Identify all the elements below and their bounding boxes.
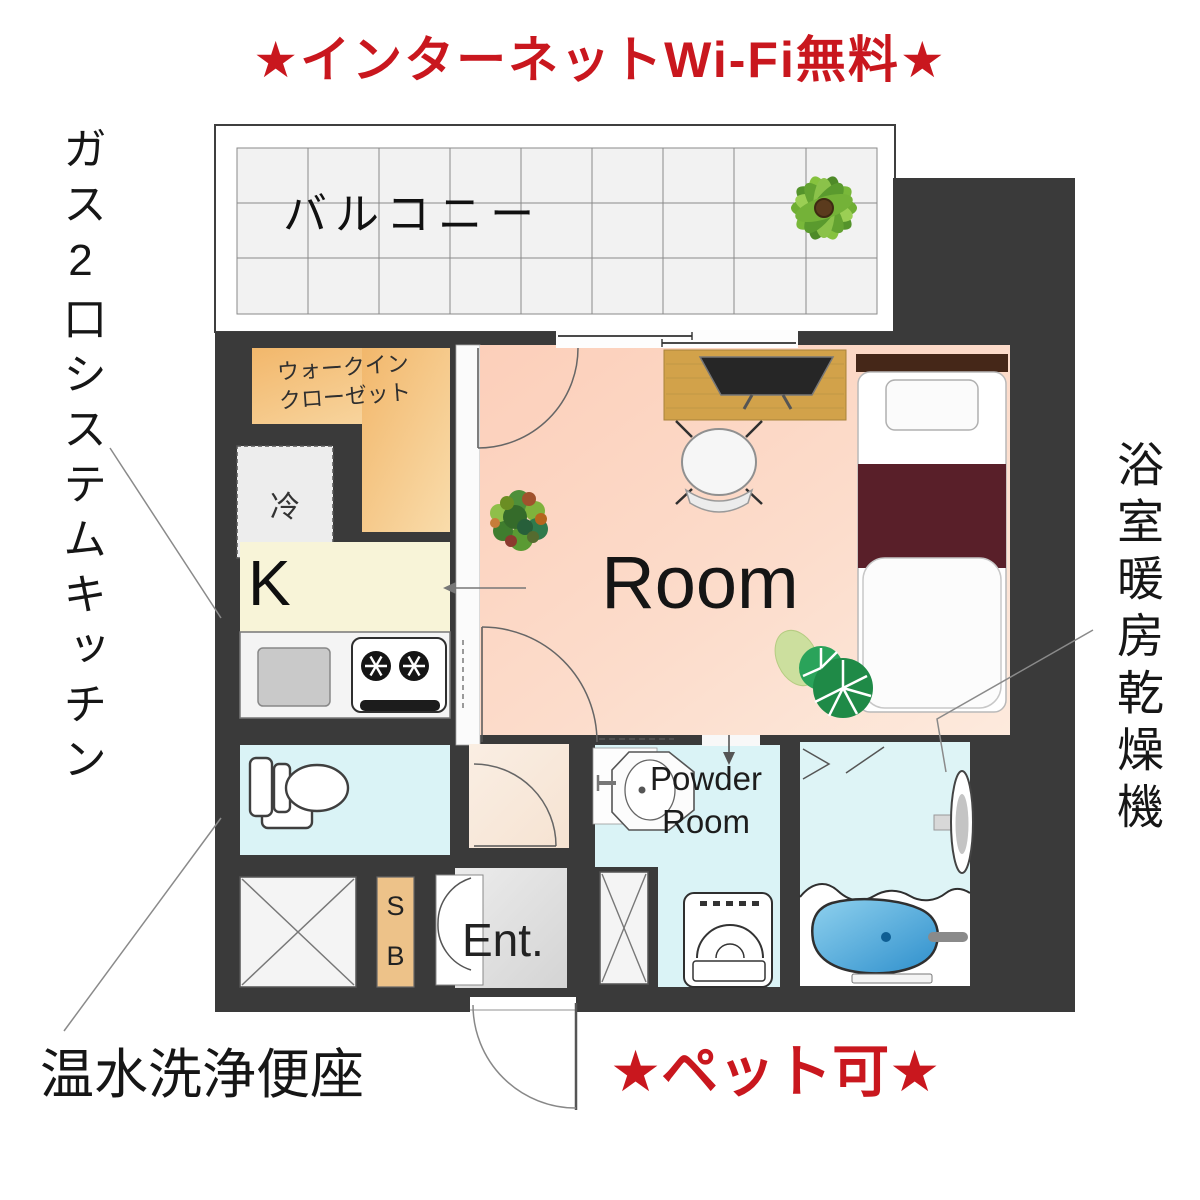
- bathtub-faucet: [928, 932, 968, 942]
- bed-blanket: [858, 464, 1006, 568]
- entrance-label: Ent.: [462, 913, 544, 967]
- powder-label-line1: Powder: [650, 760, 762, 797]
- desk: [664, 350, 846, 420]
- bed-duvet: [863, 558, 1001, 708]
- floor-plan: ★インターネットWi-Fi無料★ ガス2口システムキッチン 浴室暖房乾燥機 温水…: [0, 0, 1200, 1200]
- shoebox-label-line2: B: [386, 941, 404, 971]
- bathroom: [800, 742, 973, 986]
- leader-kitchen: [110, 448, 221, 618]
- kitchen-counter: [240, 632, 463, 718]
- kitchen-label: K: [248, 546, 291, 620]
- bed: [856, 354, 1008, 712]
- shoebox-label-line1: S: [386, 891, 404, 921]
- balcony-label: バルコニー: [283, 178, 542, 242]
- front-door: [470, 997, 576, 1110]
- front-door-arc: [473, 1005, 576, 1108]
- sink-icon: [258, 648, 330, 706]
- corridor: [456, 345, 480, 745]
- wall-top-right: [893, 178, 1075, 336]
- hall: [469, 744, 569, 848]
- powder-room-label: PowderRoom: [632, 758, 780, 844]
- powder-label-line2: Room: [662, 803, 750, 840]
- stove-icon: [352, 638, 446, 712]
- bath-step: [852, 974, 932, 983]
- note-bath-dryer: 浴室暖房乾燥機: [1102, 440, 1171, 839]
- tv-icon: [700, 357, 833, 395]
- note-washlet: 温水洗浄便座: [40, 1030, 364, 1109]
- bed-pillow: [886, 380, 978, 430]
- balcony-sliding-window: [556, 330, 798, 348]
- fridge-label: 冷: [237, 482, 333, 526]
- note-pets-ok: ★ペット可★: [610, 1026, 940, 1108]
- shaft-box-middle: [600, 872, 648, 984]
- note-kitchen: ガス2口システムキッチン: [48, 126, 112, 791]
- bed-headboard: [856, 354, 1008, 372]
- leader-toilet: [64, 818, 221, 1031]
- room-label: Room: [555, 540, 845, 625]
- page-title: ★インターネットWi-Fi無料★: [0, 20, 1200, 92]
- closet-label: ウォークインクローゼット: [254, 348, 434, 417]
- shaft-box-left: [240, 877, 356, 987]
- shoebox-label: SB: [377, 882, 414, 982]
- washing-machine-icon: [684, 893, 772, 987]
